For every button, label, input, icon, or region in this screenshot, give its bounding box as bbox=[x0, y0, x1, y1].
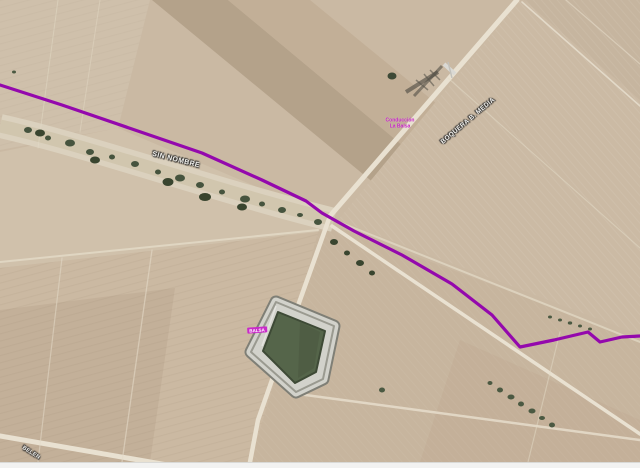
map-view: SIN NOMBRE BOQUERA B. MEDIA Conducción L… bbox=[0, 0, 640, 468]
page-bottom-margin bbox=[0, 462, 640, 468]
map-canvas[interactable]: SIN NOMBRE BOQUERA B. MEDIA Conducción L… bbox=[0, 0, 640, 462]
aerial-imagery bbox=[0, 0, 640, 462]
